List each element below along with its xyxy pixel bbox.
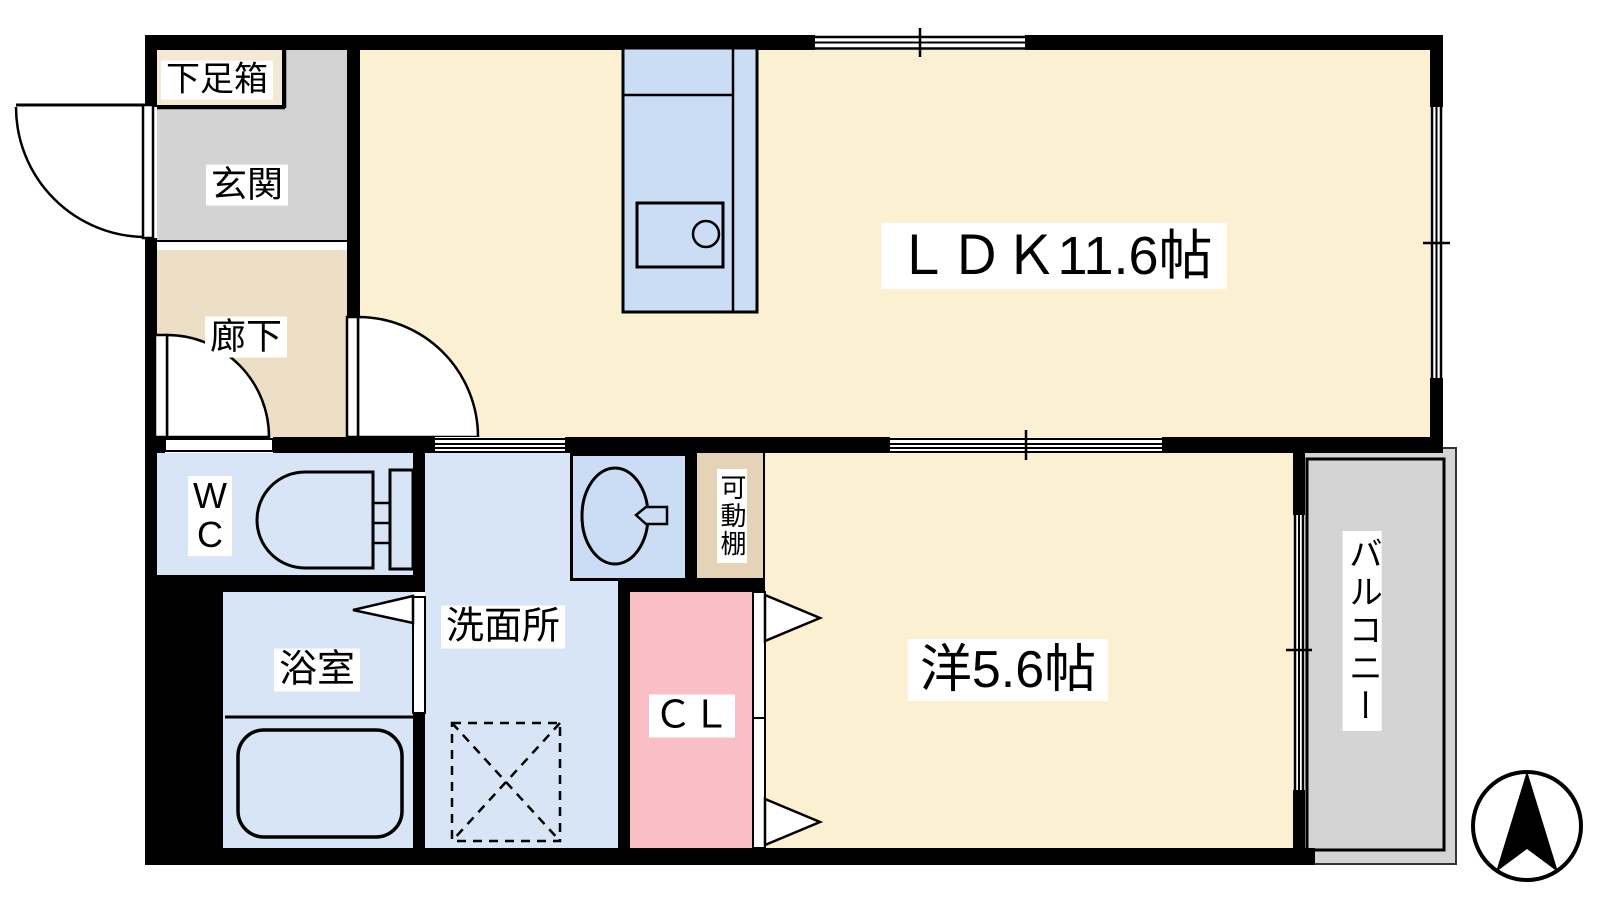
wall-wc-bottom [157, 575, 425, 592]
wall-bath-east-lower [413, 713, 425, 848]
wall-mid-a [157, 437, 165, 453]
label-wc: W C [188, 476, 232, 556]
entrance-door [16, 105, 153, 238]
bath-floor [223, 592, 413, 848]
wall-wc-right [413, 453, 425, 592]
wall-left-mid [145, 238, 157, 583]
washbasin-counter [570, 453, 688, 581]
label-bath: 浴室 [274, 648, 360, 691]
label-shoe-box: 下足箱 [161, 61, 273, 100]
floor-plan: 下足箱 玄関 廊下 ＬＤＫ11.6帖 W C 洗面所 可動棚 浴室 ＣＬ 洋5.… [0, 0, 1600, 900]
wall-western-right-upper [1293, 453, 1305, 515]
wall-basin-shelf [685, 453, 697, 592]
wall-ldk-west [347, 48, 360, 317]
label-closet: ＣＬ [649, 694, 735, 737]
wall-left-block [145, 583, 223, 865]
label-balcony: バルコニー [1343, 531, 1382, 731]
label-corridor: 廊下 [205, 317, 287, 358]
wall-top [145, 35, 1443, 50]
washroom-sliding-door [435, 437, 565, 453]
label-western-room: 洋5.6帖 [908, 639, 1108, 701]
label-ldk: ＬＤＫ11.6帖 [881, 223, 1226, 289]
wall-right-upper [1430, 35, 1443, 107]
wall-left-upper [145, 35, 157, 107]
north-compass-icon [1473, 771, 1581, 880]
wall-mid-d [1162, 437, 1443, 453]
wall-closet-left [618, 592, 630, 848]
wall-mid-c [565, 437, 890, 453]
wall-western-right-lower [1293, 790, 1305, 848]
label-washroom: 洗面所 [441, 605, 565, 648]
wall-mid-b [273, 437, 435, 453]
label-movable-shelf: 可動棚 [717, 469, 747, 563]
label-genkan: 玄関 [206, 165, 288, 206]
wall-shelf-bottom [618, 578, 765, 592]
wall-bottom [145, 848, 1315, 865]
